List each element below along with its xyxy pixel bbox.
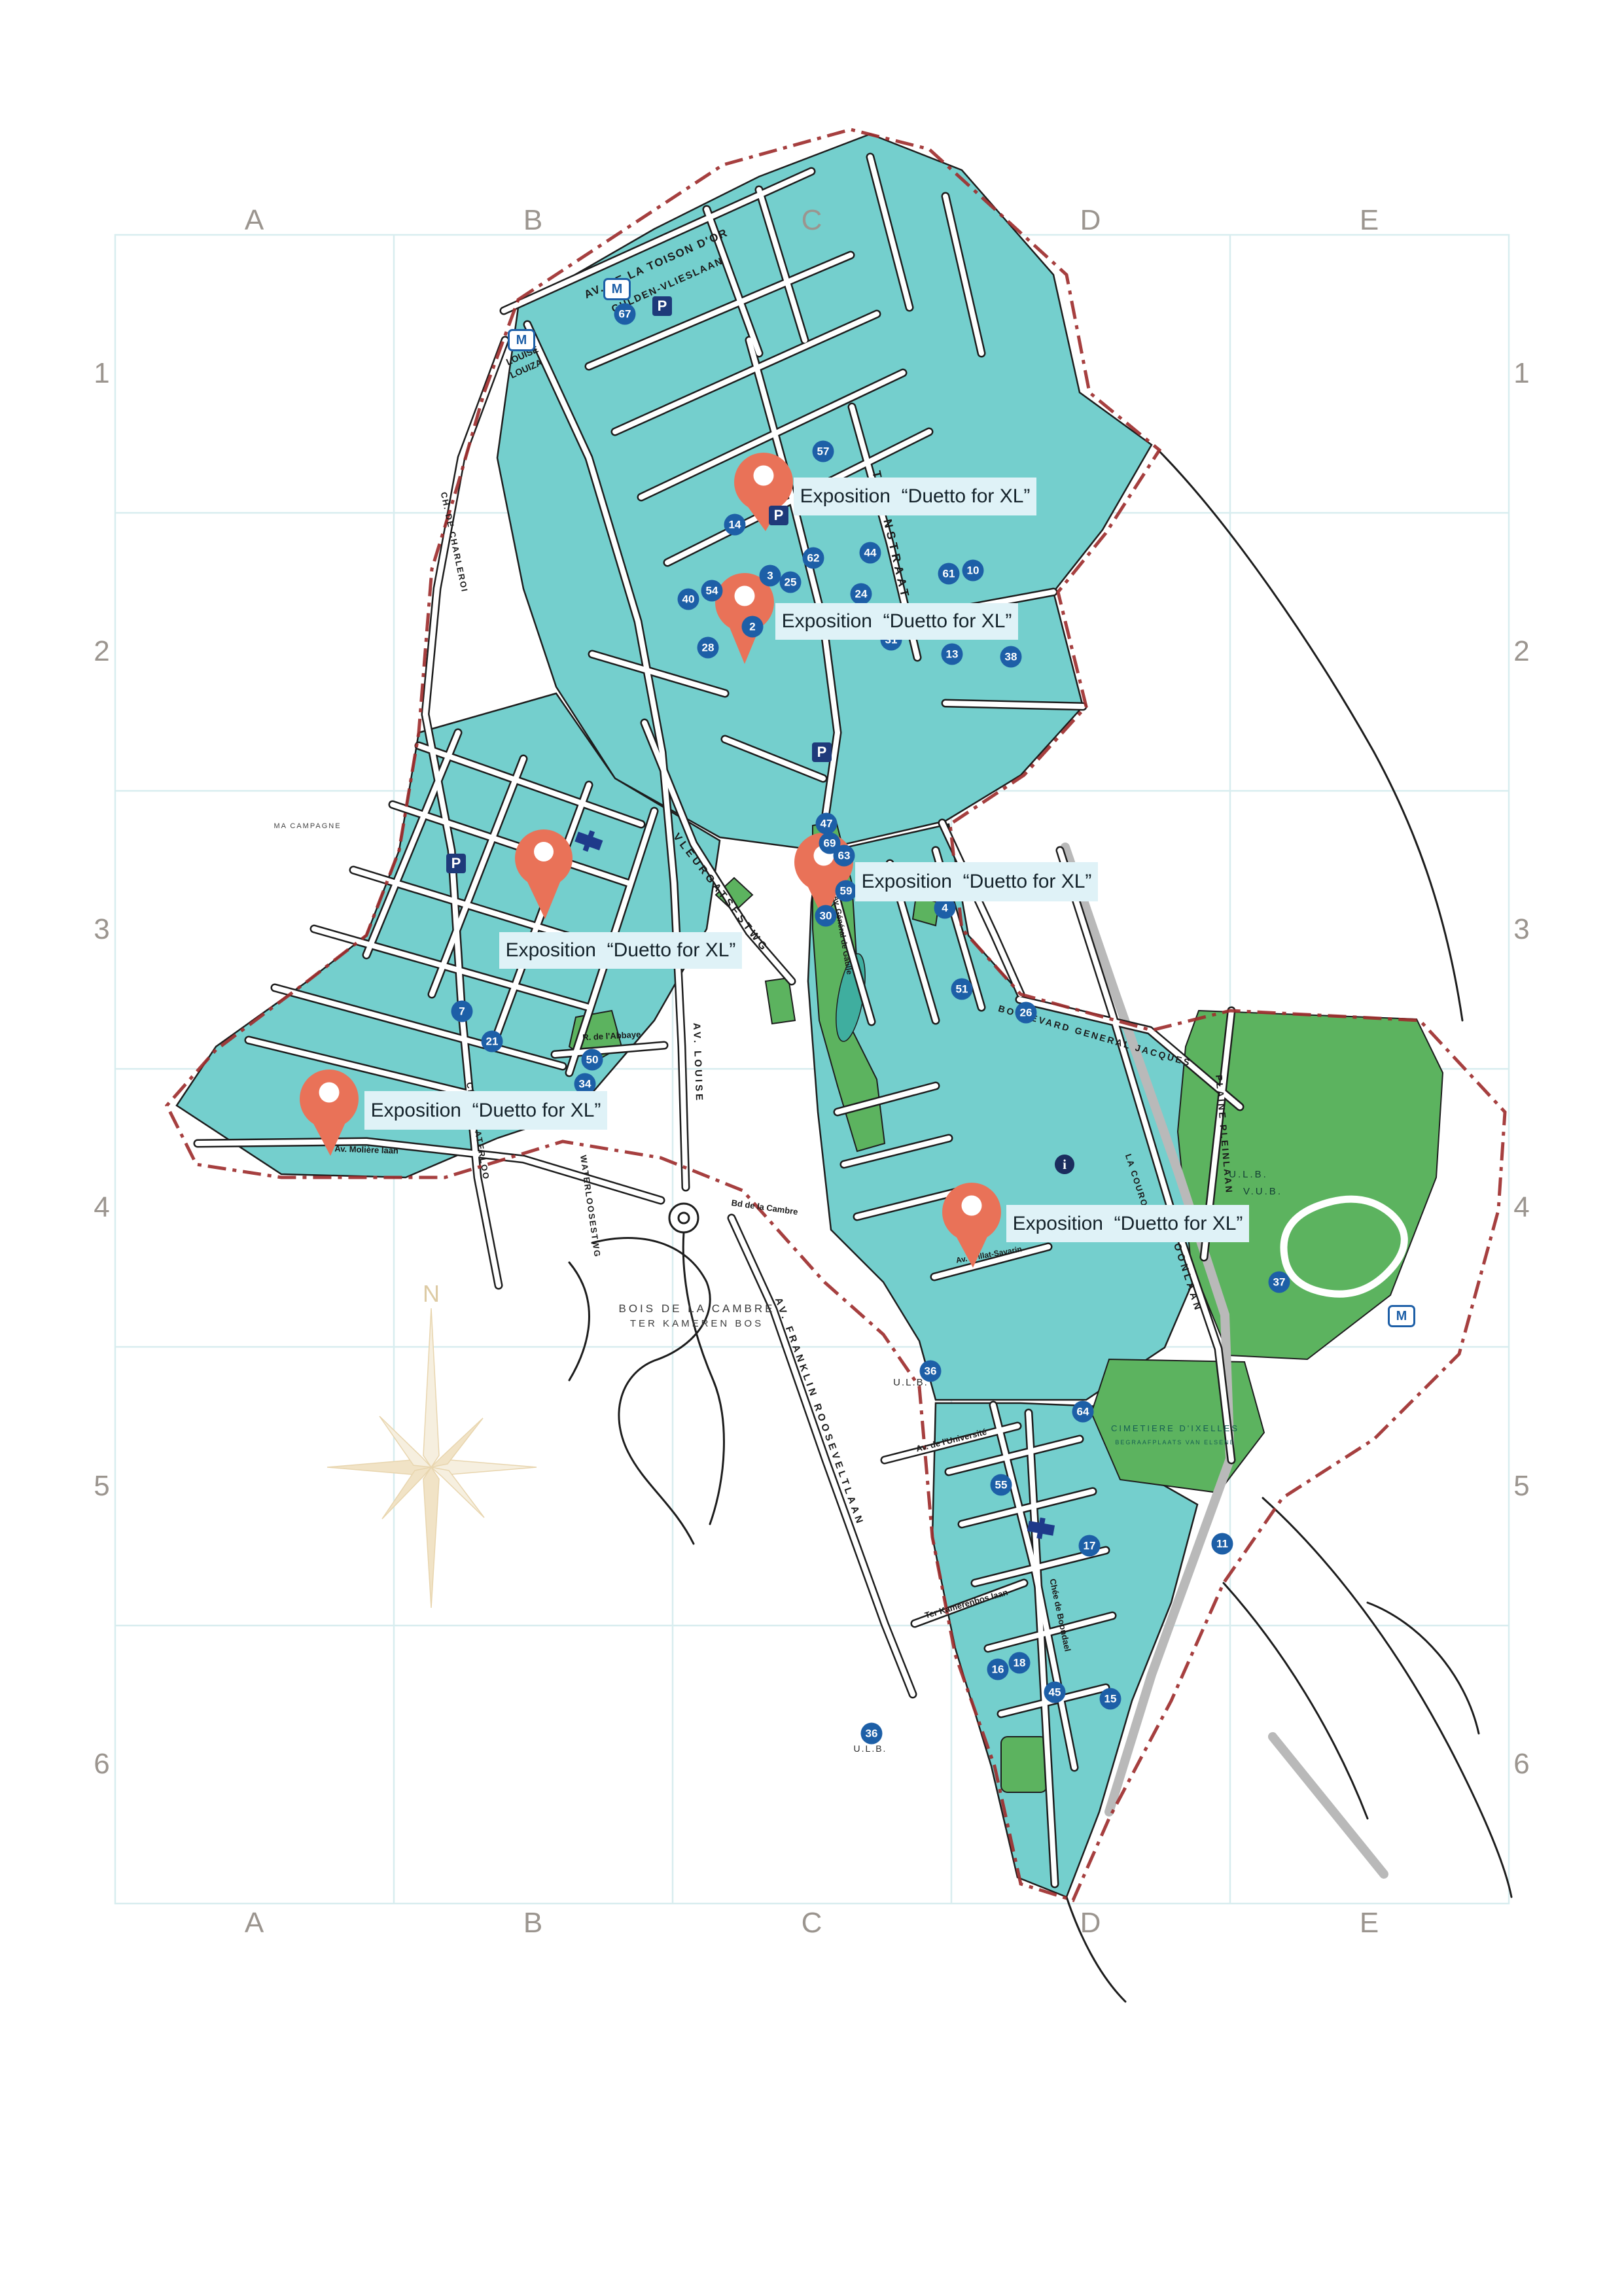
grid-col-label-top: C: [802, 204, 823, 237]
poi-marker[interactable]: 62: [803, 548, 824, 569]
map-page: AV. DE LA TOISON D'OR GULDEN-VLIESLAAN L…: [0, 0, 1624, 2296]
exposition-label-2[interactable]: Exposition “Duetto for XL”: [775, 603, 1018, 640]
exposition-label-1[interactable]: Exposition “Duetto for XL”: [794, 478, 1036, 515]
poi-marker[interactable]: 14: [724, 514, 746, 536]
exposition-label-3[interactable]: Exposition “Duetto for XL”: [499, 932, 742, 969]
grid-col-label-bottom: A: [245, 1907, 264, 1939]
grid-col-label-top: A: [245, 204, 264, 237]
grid-row-label-right: 1: [1513, 357, 1530, 390]
poi-marker[interactable]: 63: [834, 845, 855, 867]
ulb-plaine-label: U.L.B.: [1229, 1169, 1268, 1180]
metro-icon[interactable]: M: [603, 278, 631, 300]
poi-marker[interactable]: 37: [1269, 1272, 1290, 1293]
bois-label-nl: TER KAMEREN BOS: [630, 1318, 764, 1329]
poi-marker[interactable]: 38: [1000, 646, 1022, 668]
poi-marker[interactable]: 36: [861, 1723, 883, 1745]
poi-marker[interactable]: 67: [614, 304, 636, 325]
bois-label-fr: BOIS DE LA CAMBRE: [619, 1302, 775, 1315]
poi-marker[interactable]: 17: [1079, 1535, 1101, 1557]
grid-col-label-bottom: B: [523, 1907, 543, 1939]
grid-row-label-right: 6: [1513, 1748, 1530, 1781]
grid-row-label-left: 1: [94, 357, 110, 390]
poi-marker[interactable]: 10: [962, 560, 984, 582]
poi-marker[interactable]: 30: [815, 905, 837, 927]
poi-marker[interactable]: 57: [813, 441, 834, 462]
poi-marker[interactable]: 64: [1072, 1401, 1094, 1423]
vub-plaine-label: V.U.B.: [1243, 1186, 1282, 1197]
poi-marker[interactable]: 24: [851, 583, 872, 605]
poi-marker[interactable]: 61: [938, 563, 960, 585]
poi-marker[interactable]: 7: [451, 1001, 473, 1022]
exposition-label-4[interactable]: Exposition “Duetto for XL”: [855, 862, 1098, 901]
poi-marker[interactable]: 2: [742, 616, 764, 638]
street-label: WATERLOOSESTWG: [578, 1155, 603, 1259]
exposition-label-6[interactable]: Exposition “Duetto for XL”: [1006, 1205, 1249, 1242]
ma-campagne-label: MA CAMPAGNE: [274, 822, 341, 830]
poi-marker[interactable]: 13: [942, 644, 963, 665]
poi-marker[interactable]: 28: [697, 637, 719, 659]
poi-marker[interactable]: 44: [860, 542, 881, 564]
poi-marker[interactable]: 11: [1212, 1533, 1233, 1555]
poi-marker[interactable]: 36: [920, 1361, 942, 1382]
poi-marker[interactable]: 59: [836, 880, 857, 902]
parking-icon[interactable]: P: [446, 854, 466, 873]
poi-marker[interactable]: 45: [1044, 1682, 1066, 1703]
parking-icon[interactable]: P: [812, 742, 832, 762]
street-label: AV. LOUISE: [691, 1022, 705, 1103]
grid-col-label-bottom: C: [802, 1907, 823, 1939]
grid-row-label-left: 5: [94, 1470, 110, 1503]
poi-marker[interactable]: 51: [951, 979, 973, 1000]
poi-marker[interactable]: 50: [582, 1049, 603, 1071]
grid-col-label-bottom: D: [1080, 1907, 1102, 1939]
grid-row-label-right: 2: [1513, 635, 1530, 668]
metro-icon[interactable]: M: [1388, 1305, 1415, 1327]
grid-col-label-bottom: E: [1360, 1907, 1379, 1939]
grid-col-label-top: E: [1360, 204, 1379, 237]
poi-marker[interactable]: 18: [1009, 1652, 1031, 1674]
street-label: AV. FRANKLIN ROOSEVELTLAAN: [773, 1296, 866, 1527]
grid-row-label-left: 4: [94, 1191, 110, 1224]
ulb-bottom-label: U.L.B.: [854, 1743, 887, 1754]
grid-col-label-top: B: [523, 204, 543, 237]
poi-marker[interactable]: 47: [816, 813, 838, 835]
exposition-label-5[interactable]: Exposition “Duetto for XL”: [364, 1091, 607, 1130]
poi-marker[interactable]: 16: [987, 1659, 1009, 1680]
park-gordon-bennett: [1001, 1737, 1047, 1792]
grid-row-label-left: 6: [94, 1748, 110, 1781]
compass-rose: [327, 1308, 537, 1608]
metro-icon[interactable]: M: [508, 329, 535, 351]
poi-marker[interactable]: 15: [1100, 1688, 1121, 1710]
poi-marker[interactable]: 55: [991, 1474, 1012, 1496]
grid-row-label-left: 3: [94, 913, 110, 946]
cemetery-label-nl: BEGRAAFPLAATS VAN ELSENE: [1115, 1439, 1235, 1446]
info-icon[interactable]: i: [1055, 1155, 1074, 1174]
poi-marker[interactable]: 21: [482, 1031, 503, 1052]
poi-marker[interactable]: 25: [780, 572, 802, 593]
grid-row-label-right: 4: [1513, 1191, 1530, 1224]
grid-row-label-left: 2: [94, 635, 110, 668]
poi-marker[interactable]: 54: [701, 580, 723, 602]
grid-row-label-right: 3: [1513, 913, 1530, 946]
compass-north-label: N: [423, 1280, 440, 1307]
grid-row-label-right: 5: [1513, 1470, 1530, 1503]
grid-col-label-top: D: [1080, 204, 1102, 237]
cemetery-label-fr: CIMETIERE D'IXELLES: [1111, 1423, 1239, 1433]
parking-icon[interactable]: P: [769, 506, 788, 525]
parking-icon[interactable]: P: [652, 296, 672, 316]
railway-spur: [1273, 1737, 1384, 1874]
poi-marker[interactable]: 26: [1015, 1002, 1037, 1024]
poi-marker[interactable]: 40: [678, 589, 699, 610]
poi-marker[interactable]: 3: [760, 565, 781, 587]
city-map: AV. DE LA TOISON D'OR GULDEN-VLIESLAAN L…: [0, 0, 1624, 2296]
